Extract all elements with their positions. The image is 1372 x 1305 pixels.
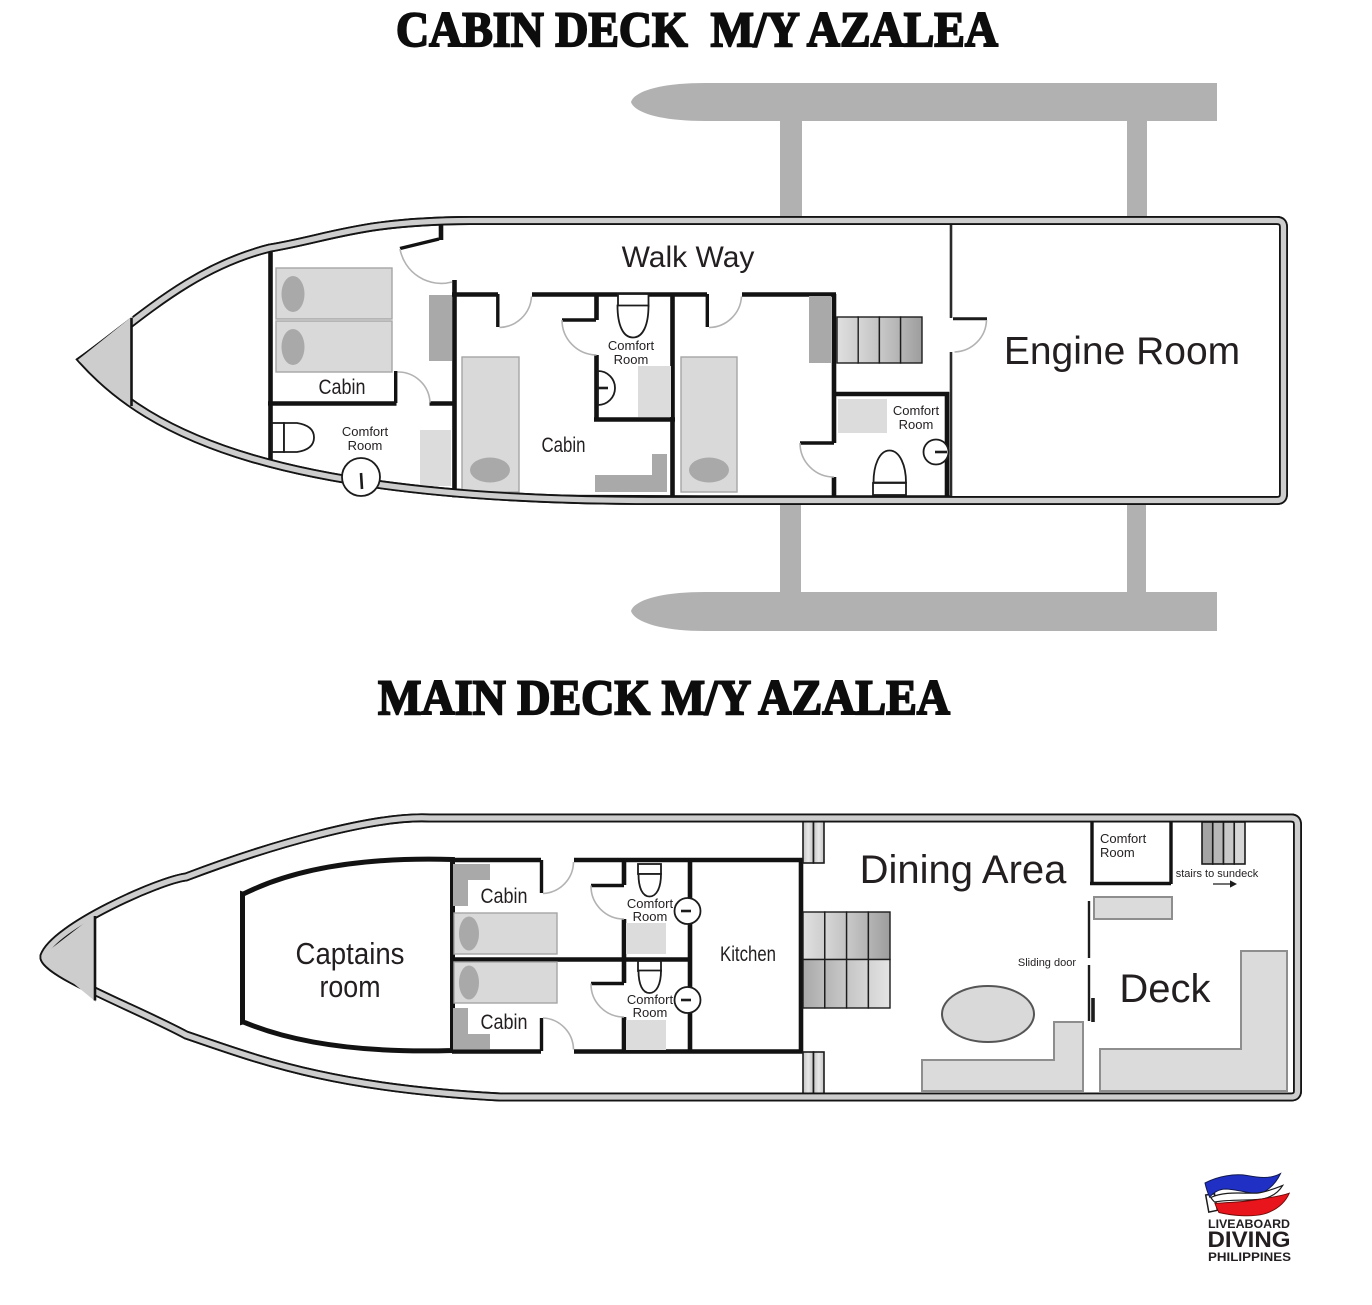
svg-text:Comfort: Comfort [1100,831,1147,846]
svg-text:CABIN DECK M/Y AZALEA: CABIN DECK M/Y AZALEA [396,1,998,57]
svg-text:Room: Room [899,417,934,432]
svg-text:Room: Room [348,438,383,453]
svg-text:Room: Room [1100,845,1135,860]
svg-text:Comfort: Comfort [342,424,389,439]
svg-text:Room: Room [633,1005,668,1020]
svg-text:Cabin: Cabin [319,376,366,399]
svg-text:Room: Room [633,909,668,924]
svg-text:Cabin: Cabin [542,434,586,457]
svg-text:stairs to sundeck: stairs to sundeck [1176,868,1259,880]
svg-text:Comfort: Comfort [608,338,655,353]
svg-text:Dining Area: Dining Area [860,848,1068,892]
svg-text:PHILIPPINES: PHILIPPINES [1208,1252,1291,1264]
svg-text:Engine Room: Engine Room [1004,330,1240,373]
svg-text:Comfort: Comfort [893,403,940,418]
svg-text:Cabin: Cabin [481,1011,528,1034]
svg-text:DIVING: DIVING [1208,1227,1291,1252]
svg-text:Deck: Deck [1119,967,1211,1011]
svg-text:Cabin: Cabin [481,885,528,908]
svg-text:Walk Way: Walk Way [622,241,755,274]
svg-text:Room: Room [614,352,649,367]
svg-text:Captains: Captains [296,936,405,971]
svg-text:MAIN DECK M/Y AZALEA: MAIN DECK M/Y AZALEA [378,669,950,725]
svg-text:Kitchen: Kitchen [720,943,776,966]
svg-text:room: room [320,969,381,1004]
svg-text:Sliding door: Sliding door [1018,957,1076,969]
